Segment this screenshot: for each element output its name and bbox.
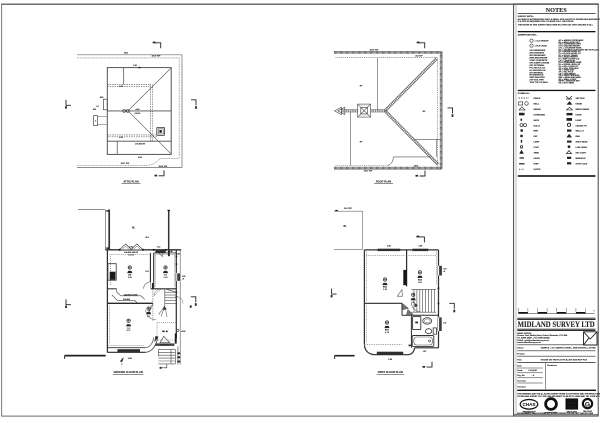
svg-text:1.07: 1.07 [423,351,427,353]
svg-text:LEVEL: LEVEL [534,158,541,160]
svg-text:DRAIN: DRAIN [576,102,583,105]
svg-text:1.98: 1.98 [418,246,422,248]
svg-text:ABBREVIATIONS:-: ABBREVIATIONS:- [518,33,538,36]
svg-text:RICS: RICS [568,401,575,405]
svg-text:39.18 TOP: 39.18 TOP [152,56,161,58]
svg-text:ROOF PLAN: ROOF PLAN [376,179,391,183]
svg-text:39.2 TOP: 39.2 TOP [344,208,352,210]
svg-text:2.08: 2.08 [119,86,123,88]
svg-text:DOOR: DOOR [576,114,583,116]
svg-text:POST: POST [534,147,540,149]
svg-text:Drg. No.: Drg. No. [517,375,525,377]
svg-text:NOTES: NOTES [546,7,568,14]
svg-text:39.11 TOP: 39.11 TOP [364,171,373,173]
svg-text:4.05: 4.05 [138,156,142,159]
svg-text:SECTION: SECTION [576,98,585,100]
svg-text:G: G [585,401,590,408]
svg-text:2.08: 2.08 [119,137,123,139]
svg-text:Scale: Scale [517,370,523,372]
svg-text:THE HOUSE IN THIS SURVEY WAS D: THE HOUSE IN THIS SURVEY WAS DONE IN A T… [518,24,594,27]
svg-text:TRA LOGIC: TRA LOGIC [583,410,593,413]
svg-text:39.18 TOP: 39.18 TOP [370,49,379,51]
svg-text:SVP: SVP [534,136,539,138]
svg-text:SAMPLE + The SAMPLE GUIDE +: SAMPLE + The SAMPLE GUIDE + SEE (STUDIO)… [541,347,596,350]
svg-text:1.75 AVG HT: 1.75 AVG HT [135,142,146,145]
svg-text:STEP: STEP [534,163,540,165]
svg-text:39.2: 39.2 [145,237,148,239]
svg-text:1:100@A1: 1:100@A1 [528,369,538,372]
svg-text:LIGHT: LIGHT [576,120,583,122]
svg-text:SLOPE: SLOPE [534,169,541,171]
svg-text:www.midlandsurvey.co.uk: www.midlandsurvey.co.uk [517,342,541,344]
svg-text:www.chas.co.uk: www.chas.co.uk [522,411,535,413]
svg-text:WALL: WALL [534,102,540,105]
svg-text:TREE: TREE [534,153,540,155]
svg-text:THIS DRAWING AND THE AL-ALONG: THIS DRAWING AND THE AL-ALONG SURVEY WOR… [517,392,600,395]
svg-text:39.11 TOP: 39.11 TOP [121,163,130,165]
svg-text:2.44 AVG 2.04 HD: 2.44 AVG 2.04 HD [124,293,139,296]
svg-text:HEDGE: HEDGE [534,109,542,111]
svg-text:RWP: RWP [534,131,539,133]
svg-text:LD: LD [412,302,415,304]
svg-text:CHAS: CHAS [522,402,535,407]
svg-text:+0.00: +0.00 [181,331,185,333]
svg-text:LOW LEVEL: LOW LEVEL [576,147,588,149]
svg-text:WALL LT: WALL LT [576,130,585,133]
svg-text:1.12: 1.12 [157,247,161,249]
svg-text:SKY LIGHT: SKY LIGHT [576,153,587,155]
svg-text:OVERHANG: OVERHANG [534,113,546,116]
svg-text:MIDLAND SURVEY LTD: MIDLAND SURVEY LTD [518,320,595,329]
svg-text:GATE: GATE [534,119,540,122]
svg-text:2.0: 2.0 [96,106,98,108]
svg-text:LAMP: LAMP [534,141,540,144]
svg-text:39.16: 39.16 [414,165,418,167]
svg-text:XX = NOT SEEN: XX = NOT SEEN [559,83,575,85]
svg-text:= FLR LEVEL: = FLR LEVEL [535,46,548,48]
svg-text:Checked: Checked [517,386,526,388]
svg-text:2.38 AVG: 2.38 AVG [123,298,131,301]
svg-text:39.2 TOP: 39.2 TOP [415,55,423,57]
svg-text:CEILING HT: CEILING HT [576,125,588,127]
svg-text:HOUSE ON THE PLOT FLR, ATT AND: HOUSE ON THE PLOT FLR, ATT AND ROF PLN [541,358,588,361]
svg-text:39.13: 39.13 [124,53,128,55]
svg-text:1.07: 1.07 [443,323,446,325]
svg-text:OF MIDLAND SURVEY LTD. THE LAW: OF MIDLAND SURVEY LTD. THE LAW AND RIGHT… [517,395,600,398]
svg-text:3.96: 3.96 [133,65,137,67]
svg-text:TOW TOP OF WALL: TOW TOP OF WALL [530,81,550,84]
svg-text:GROUND FLOOR PLAN: GROUND FLOOR PLAN [114,370,143,374]
svg-text:RIDGE: RIDGE [135,113,141,115]
svg-text:GULLY: GULLY [534,125,541,127]
svg-text:FIRST FLOOR PLAN: FIRST FLOOR PLAN [378,370,403,374]
svg-text:2.44 AVG 2.04 HD: 2.44 AVG 2.04 HD [124,251,139,254]
svg-text:= CLG HEIGHT: = CLG HEIGHT [535,41,550,43]
svg-text:STOP COCK: STOP COCK [576,163,588,165]
svg-text:IF A SITE IS REQUIRED FULLY PL: IF A SITE IS REQUIRED FULLY PLEASE CALL … [518,20,574,23]
svg-text:RAD: RAD [576,135,581,138]
svg-text:SYMBOLS:-: SYMBOLS:- [518,93,531,95]
svg-text:FENCE: FENCE [534,98,541,100]
svg-text:Project:: Project: [517,352,525,355]
svg-text:SURVEY NOTE:-: SURVEY NOTE:- [518,16,535,18]
svg-text:SURV: SURV [568,406,575,409]
svg-text:BENCH MARK: BENCH MARK [576,108,590,111]
svg-text:39.16 TOP: 39.16 TOP [159,166,168,168]
svg-text:Client:: Client: [517,347,524,350]
svg-text:ATTIC PLAN: ATTIC PLAN [123,179,138,183]
svg-text:MANHOLE: MANHOLE [576,157,587,160]
svg-text:1.98: 1.98 [387,246,391,248]
svg-text:0.12: 0.12 [145,271,148,273]
svg-text:0.91: 0.91 [182,276,185,278]
svg-text:Title:: Title: [517,358,522,361]
svg-text:0.91 +0.00: 0.91 +0.00 [160,345,168,347]
svg-text:Surveyor: Surveyor [517,380,526,382]
svg-text:0.91: 0.91 [443,269,446,271]
svg-text:3.96: 3.96 [129,247,133,249]
svg-text:ARCH HEAD: ARCH HEAD [576,141,589,144]
svg-text:Revisions: Revisions [547,365,557,367]
